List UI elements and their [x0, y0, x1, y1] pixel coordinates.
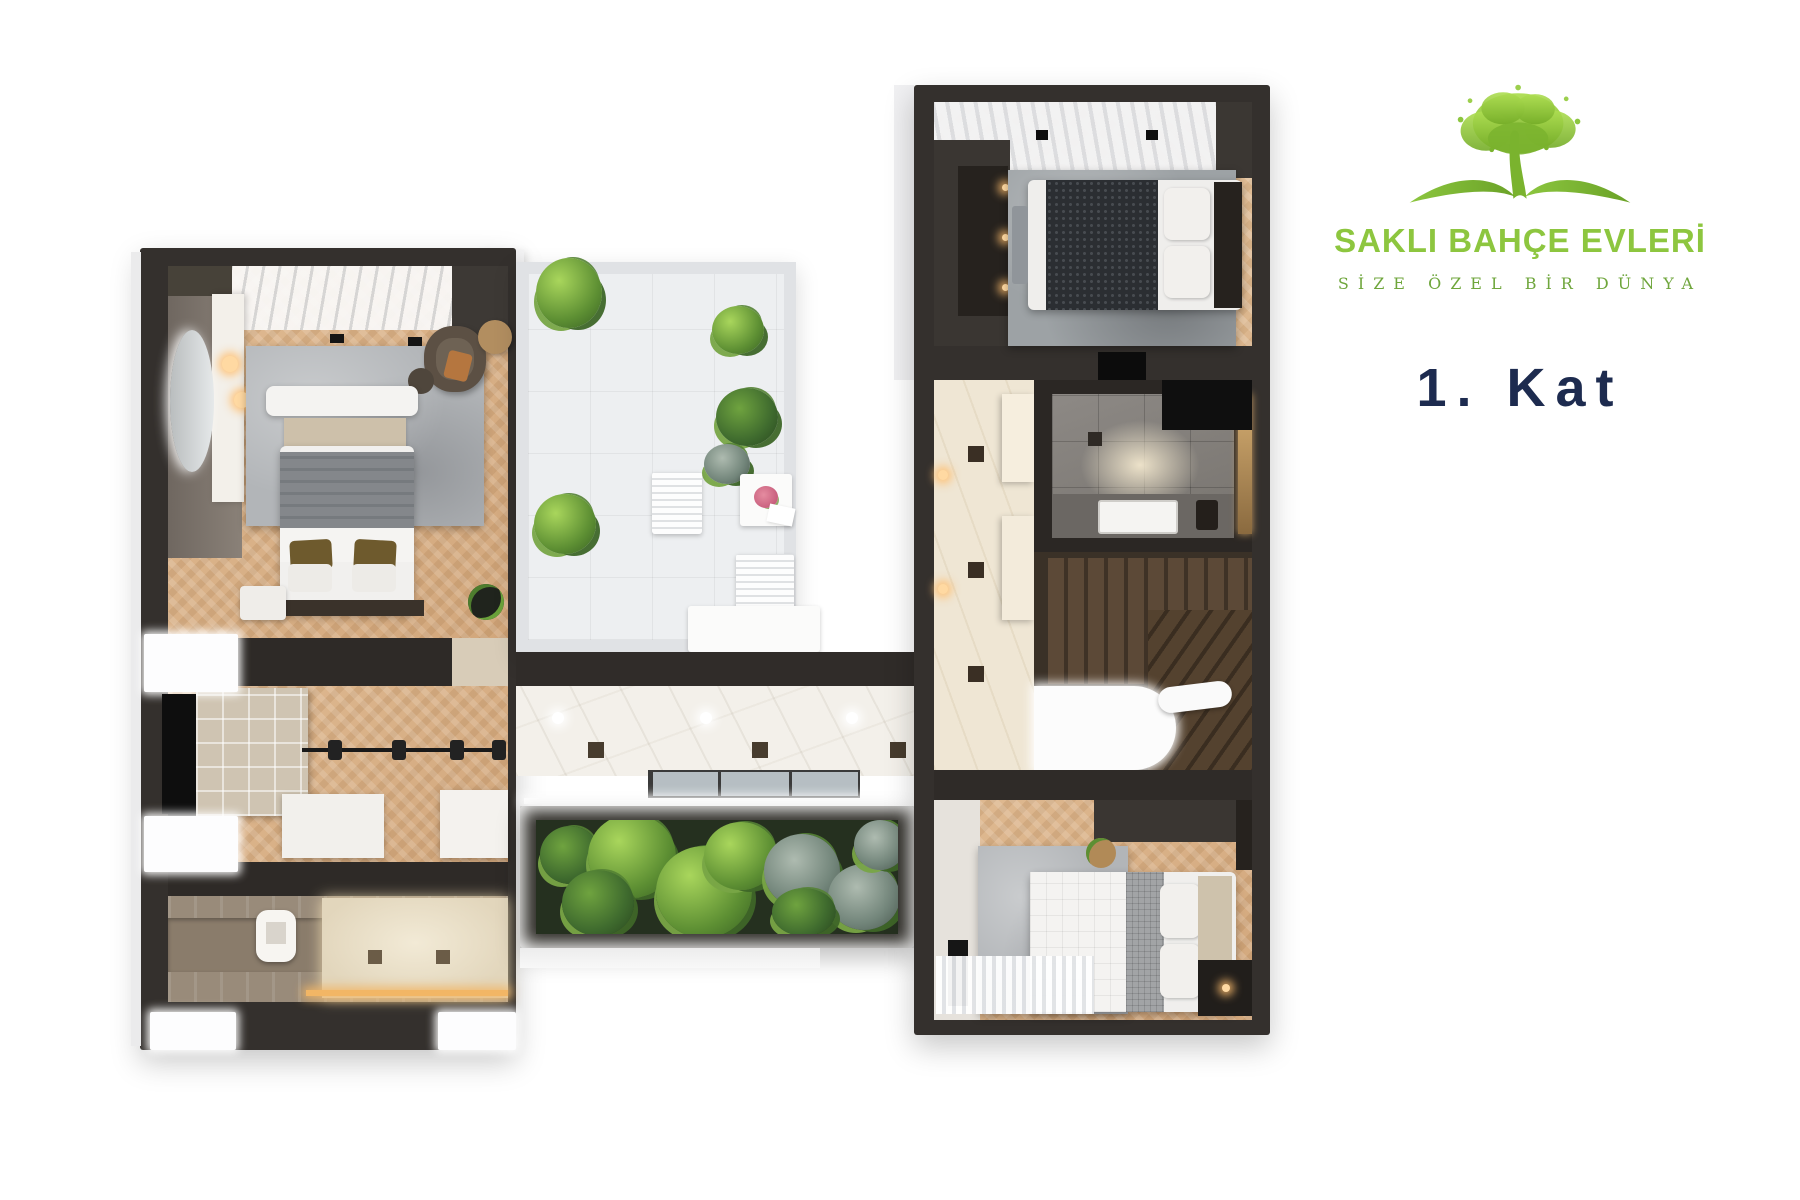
floor-vent [1088, 432, 1102, 446]
bed-pillow-white [352, 564, 396, 592]
terrace-planter-bench [688, 606, 820, 652]
terrace-bench [652, 472, 702, 534]
page: SAKLI BAHÇE EVLERİ SİZE ÖZEL BİR DÜNYA 1… [0, 0, 1800, 1200]
window [438, 1012, 516, 1050]
curtain-corner-dark [1216, 102, 1252, 178]
wall-light [938, 470, 948, 480]
bed-blanket [280, 452, 414, 528]
floor-vent [968, 666, 984, 682]
floor-vent [436, 950, 450, 964]
toiletry-items [1196, 500, 1218, 530]
toilet-lid-detail [266, 922, 286, 944]
bedroom2-headboard [1214, 182, 1242, 308]
garden-south-parapet [520, 948, 820, 968]
bedroom2-pillow [1164, 188, 1210, 240]
hanger-cluster [450, 740, 464, 760]
pergola-clip [1146, 130, 1158, 140]
bedroom3-curtain [936, 956, 1094, 1014]
hall-cabinet [1002, 394, 1034, 482]
floor-label: 1. Kat [1280, 357, 1760, 419]
led-strip [306, 990, 508, 996]
sink [1098, 500, 1178, 534]
floor-vent [368, 950, 382, 964]
terrace-plant [534, 494, 596, 554]
window [144, 816, 238, 872]
bedroom2-wardrobe-inner [958, 166, 1008, 316]
garden-bed [536, 820, 898, 934]
bedroom3-waffle-blanket [1126, 872, 1164, 1012]
hanger-cluster [392, 740, 406, 760]
side-table [478, 320, 512, 354]
bedroom2-pillow [1164, 246, 1210, 298]
bedroom3-wall-stub [1094, 800, 1252, 842]
garden-plant [562, 870, 634, 934]
terrace-plant [712, 306, 764, 354]
pergola-clip [408, 337, 422, 346]
dressing-cabinet [440, 790, 508, 858]
terrace-plant [536, 258, 602, 328]
garden-plant [828, 864, 898, 930]
wall-niche [162, 694, 196, 814]
floor-vent [968, 562, 984, 578]
bedroom3-north-wall [934, 770, 1252, 800]
doorway [452, 638, 508, 686]
floor-vent [588, 742, 604, 758]
bed-platform [270, 600, 424, 616]
pergola-clip [1036, 130, 1048, 140]
nightstand [240, 586, 286, 620]
dressing-cabinet [282, 794, 384, 858]
floor-vent [752, 742, 768, 758]
ceiling-light [552, 712, 564, 724]
ceiling-light [700, 712, 712, 724]
floor-vent [968, 446, 984, 462]
window [144, 634, 238, 692]
left-wing-outer-edge [131, 252, 141, 1046]
vanity-mirror [170, 330, 214, 472]
bedroom3-pillow [1160, 884, 1200, 938]
glass-floor [648, 770, 860, 798]
floor-vent [890, 742, 906, 758]
vanity-sconce-light [222, 356, 238, 372]
brand-title: SAKLI BAHÇE EVLERİ [1280, 222, 1760, 260]
hallway-floor [516, 686, 914, 776]
hanger-cluster [492, 740, 506, 760]
plant-stool [1086, 838, 1116, 868]
hanger-cluster [328, 740, 342, 760]
stair-landing [1034, 686, 1176, 770]
brand-block: SAKLI BAHÇE EVLERİ SİZE ÖZEL BİR DÜNYA 1… [1280, 80, 1760, 419]
bathroom2-dark-block [1162, 380, 1252, 430]
hallway-led-edge [524, 798, 912, 804]
window [150, 1012, 236, 1050]
wall-light [938, 584, 948, 594]
bathroom-ledge [168, 918, 324, 972]
garden-plant [772, 888, 836, 934]
corner-light [1222, 984, 1230, 992]
ceiling-light [846, 712, 858, 724]
brand-tagline: SİZE ÖZEL BİR DÜNYA [1280, 274, 1760, 293]
garden-plant [854, 820, 898, 870]
right-wing-outer-edge [894, 85, 914, 380]
hallway-north-wall [516, 652, 914, 686]
bathroom-lit-floor [322, 898, 508, 998]
pergola-clip [330, 334, 344, 343]
bedroom2-bench [1012, 206, 1028, 284]
bed-pillow-white [288, 564, 332, 592]
bed-console [266, 386, 418, 416]
bedroom3-pillow [1160, 944, 1200, 998]
hall-cabinet [1002, 516, 1034, 620]
bedroom3-side-panel [1236, 800, 1252, 870]
potted-plant [468, 584, 504, 620]
bedroom2-blanket [1046, 180, 1158, 310]
terrace-plant [716, 388, 778, 446]
tree-logo-icon [1395, 80, 1645, 212]
